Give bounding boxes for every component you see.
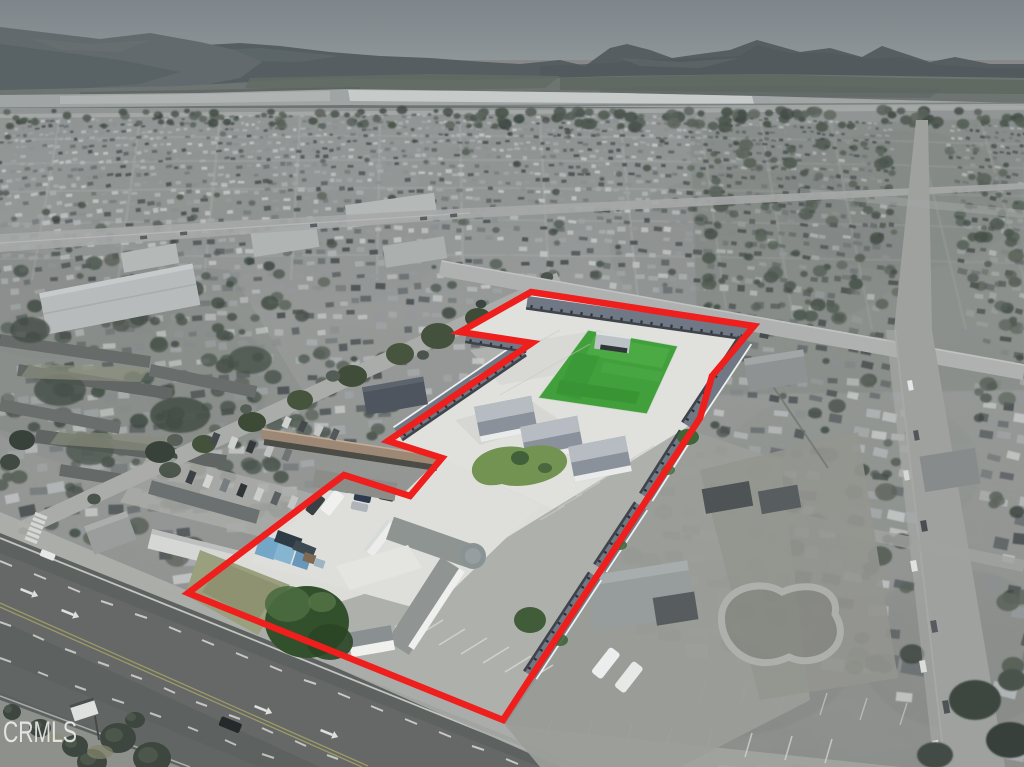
svg-text:CRMLS: CRMLS <box>3 716 77 749</box>
